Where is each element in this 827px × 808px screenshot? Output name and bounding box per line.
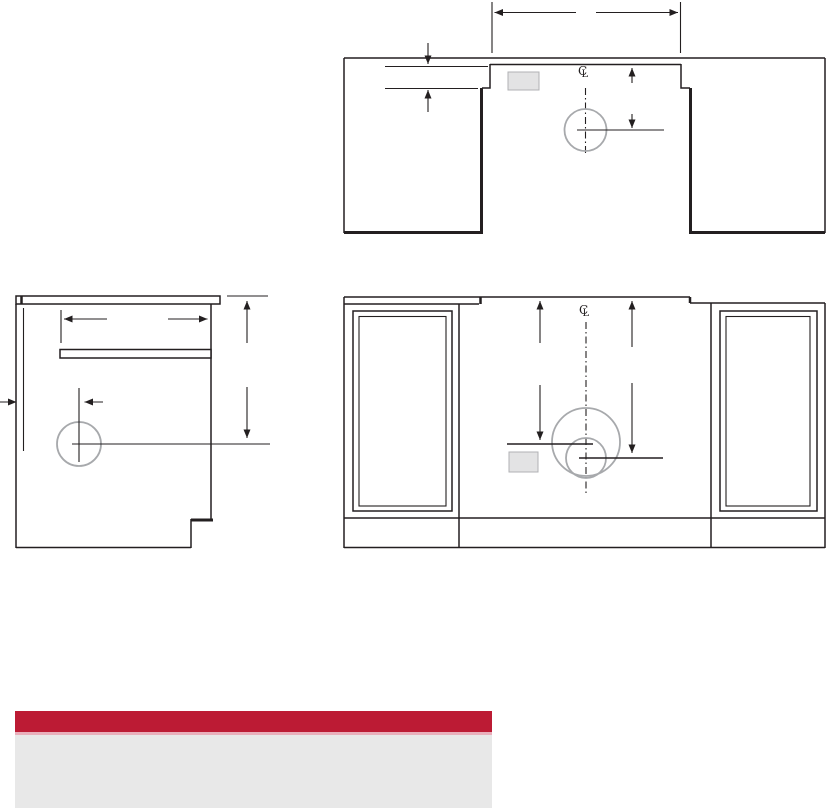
- front-centerline-icon: C L: [579, 305, 595, 324]
- centerline-l-glyph: L: [583, 309, 590, 319]
- front-right-door-outer: [720, 311, 817, 511]
- plan-centerline-icon: C L: [578, 66, 594, 85]
- plan-junction-box: [508, 72, 539, 90]
- side-view-cabinet-drawing: [0, 296, 270, 548]
- drawings-canvas: [0, 0, 827, 700]
- front-left-door-inner: [359, 317, 446, 507]
- front-right-door-inner: [726, 317, 810, 507]
- plan-cutout-right-step: [681, 64, 690, 88]
- plan-cutout-left-step: [482, 64, 490, 88]
- section-note-panel: [15, 735, 492, 808]
- centerline-l-glyph: L: [582, 70, 589, 80]
- front-view-cabinet-drawing: [344, 297, 825, 548]
- installation-diagram-page: C L C L: [0, 0, 827, 808]
- plan-view-cutout-drawing: [344, 2, 825, 233]
- front-left-door-outer: [353, 311, 452, 511]
- front-junction-box: [509, 452, 538, 472]
- side-rail: [60, 350, 211, 359]
- side-countertop-slab: [16, 296, 220, 304]
- section-header-red-bar: [15, 711, 492, 732]
